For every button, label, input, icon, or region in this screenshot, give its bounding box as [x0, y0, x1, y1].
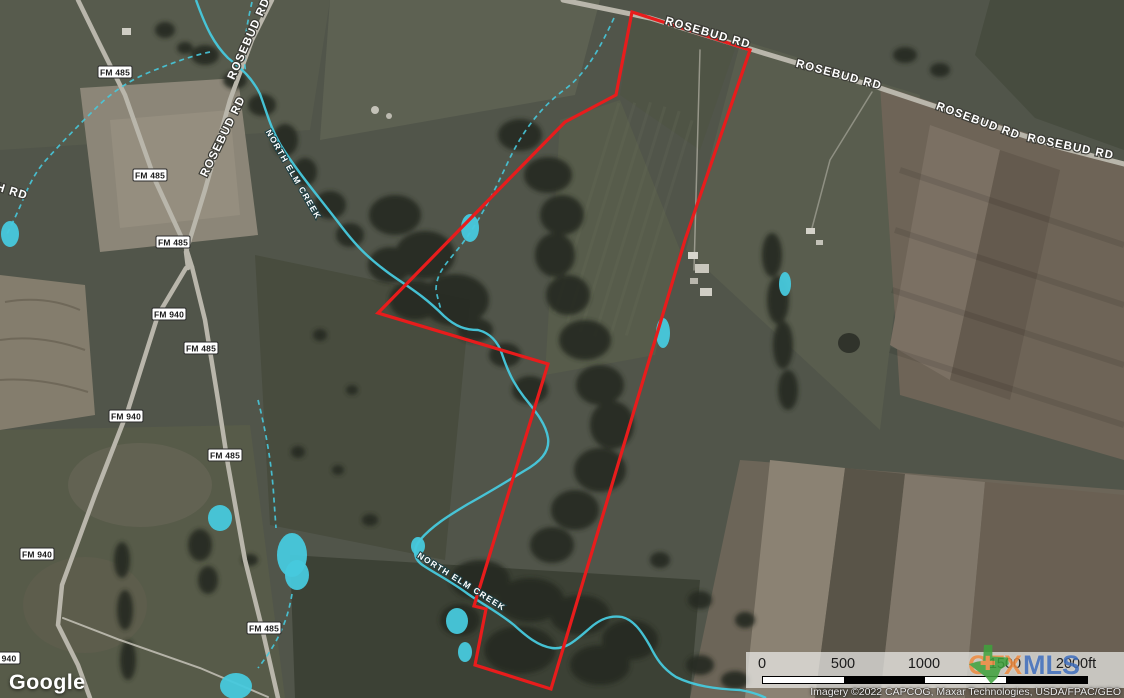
dark-stock-pond: [838, 333, 860, 353]
svg-text:940: 940: [2, 654, 17, 664]
road-shield-fm940: FM 940: [20, 548, 54, 560]
svg-text:FM 485: FM 485: [186, 344, 216, 354]
imagery-attribution: Imagery ©2022 CAPCOG, Maxar Technologies…: [810, 686, 1121, 698]
ctxmls-logo: CTX MLS: [968, 644, 1080, 686]
road-shield-fm940: FM 940: [152, 308, 186, 320]
svg-text:FM 485: FM 485: [135, 171, 165, 181]
road-shield-fm940: FM 940: [109, 410, 143, 422]
svg-text:FM 940: FM 940: [22, 550, 52, 560]
road-shield-fm485: FM 485: [184, 342, 218, 354]
map-canvas[interactable]: ROSEBUD RD ROSEBUD RD ROSEBUD RD ROSEBUD…: [0, 0, 1124, 698]
scale-tick: 0: [758, 656, 766, 672]
svg-text:FM 485: FM 485: [100, 68, 130, 78]
scale-bar-segment: [763, 677, 844, 683]
road-shield-fm485: FM 485: [98, 66, 132, 78]
road-shield-fm485: FM 485: [156, 236, 190, 248]
svg-text:FM 940: FM 940: [154, 310, 184, 320]
road-shield-fm485: FM 485: [208, 449, 242, 461]
svg-text:FM 485: FM 485: [249, 624, 279, 634]
road-shield-fm485: FM 485: [133, 169, 167, 181]
svg-text:FM 485: FM 485: [158, 238, 188, 248]
mls-logo-text: MLS: [1023, 644, 1080, 686]
satellite-map: ROSEBUD RD ROSEBUD RD ROSEBUD RD ROSEBUD…: [0, 0, 1124, 698]
svg-text:FM 940: FM 940: [111, 412, 141, 422]
road-shield-fm485: FM 485: [247, 622, 281, 634]
texas-icon: [968, 644, 1010, 686]
scale-tick: 500: [831, 656, 855, 672]
scale-tick: 1000: [908, 656, 940, 672]
google-logo[interactable]: Google: [9, 670, 85, 695]
road-shield-fm940-partial: 940: [0, 652, 20, 664]
scale-bar-segment: [844, 677, 925, 683]
svg-text:FM 485: FM 485: [210, 451, 240, 461]
